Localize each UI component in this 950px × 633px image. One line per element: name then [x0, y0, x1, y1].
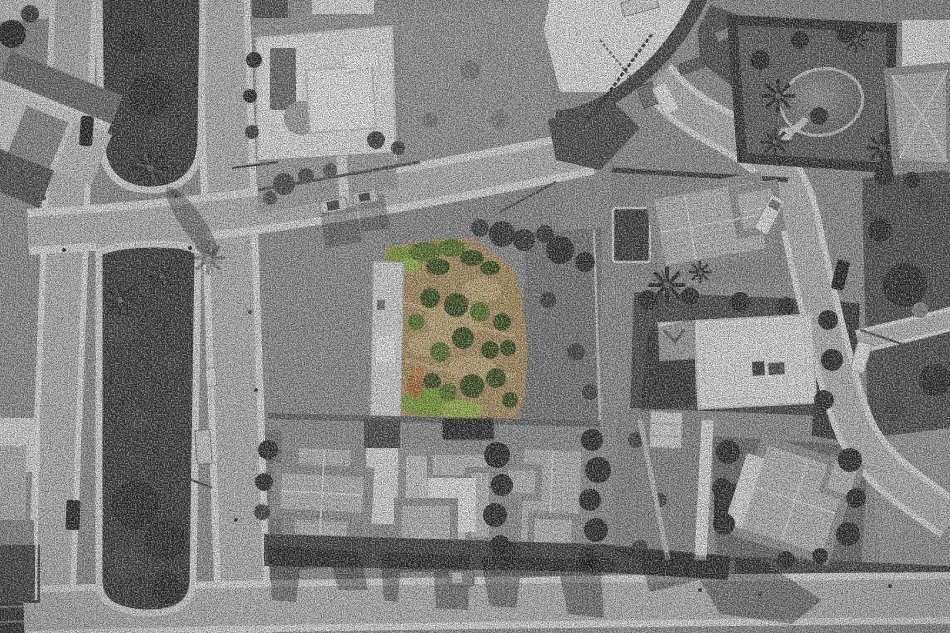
aerial-photo-canvas	[0, 0, 950, 633]
vignette	[0, 0, 950, 633]
aerial-photo	[0, 0, 950, 633]
